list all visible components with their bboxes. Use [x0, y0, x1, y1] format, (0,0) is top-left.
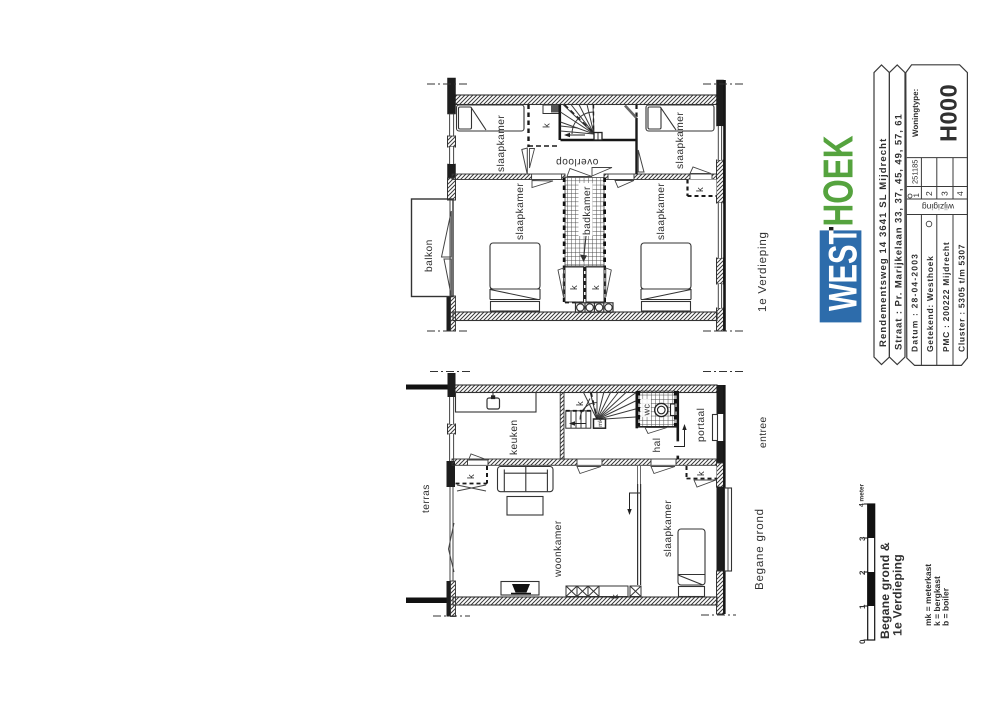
svg-text:k: k — [466, 474, 477, 479]
svg-text:Begane grond: Begane grond — [754, 508, 766, 590]
svg-text:Getekend: Westhoek: Getekend: Westhoek — [925, 255, 935, 352]
svg-text:terras: terras — [421, 484, 432, 513]
svg-text:Woningtype:: Woningtype: — [911, 89, 920, 137]
svg-text:3: 3 — [940, 191, 950, 196]
svg-text:0: 0 — [858, 639, 867, 644]
svg-text:2: 2 — [924, 191, 934, 196]
svg-text:entree: entree — [758, 416, 769, 448]
svg-text:2: 2 — [858, 570, 867, 575]
svg-text:badkamer: badkamer — [582, 186, 593, 235]
svg-text:1: 1 — [858, 604, 867, 609]
svg-text:1e Verdieping: 1e Verdieping — [891, 554, 905, 636]
svg-text:PMC : 200222 Mijdrecht: PMC : 200222 Mijdrecht — [941, 242, 951, 352]
svg-text:wijziging: wijziging — [922, 202, 955, 212]
svg-text:k: k — [591, 285, 602, 290]
svg-text:slaapkamer: slaapkamer — [496, 115, 507, 172]
svg-text:woonkamer: woonkamer — [553, 520, 564, 578]
svg-text:slaapkamer: slaapkamer — [663, 500, 674, 557]
svg-text:4: 4 — [955, 191, 965, 196]
svg-text:b = boiler: b = boiler — [941, 587, 951, 626]
svg-text:Datum : 28-04-2003: Datum : 28-04-2003 — [910, 253, 920, 352]
svg-text:k: k — [695, 187, 706, 192]
svg-text:k: k — [696, 471, 707, 476]
svg-text:Cluster : 5305 t/m 5307: Cluster : 5305 t/m 5307 — [957, 244, 967, 352]
svg-text:1: 1 — [912, 193, 921, 198]
svg-text:slaapkamer: slaapkamer — [656, 183, 667, 240]
svg-text:Rendementsweg 14 3641 SL M: Rendementsweg 14 3641 SL Mijdrecht — [878, 138, 889, 347]
svg-text:slaapkamer: slaapkamer — [515, 183, 526, 240]
svg-text:k: k — [575, 401, 586, 406]
svg-text:k: k — [610, 594, 621, 599]
svg-text:251185: 251185 — [911, 160, 920, 184]
svg-text:keuken: keuken — [509, 419, 520, 455]
svg-text:k: k — [569, 285, 580, 290]
svg-text:overloop: overloop — [556, 156, 599, 167]
svg-text:mk: mk — [597, 418, 604, 427]
svg-text:4 meter: 4 meter — [859, 483, 866, 507]
svg-text:WEST: WEST — [822, 227, 866, 311]
svg-text:HOEK: HOEK — [815, 135, 862, 226]
svg-text:balkon: balkon — [424, 239, 435, 272]
svg-text:hal: hal — [652, 438, 663, 453]
svg-text:H000: H000 — [936, 84, 962, 142]
svg-text:k: k — [542, 123, 553, 128]
svg-text:slaapkamer: slaapkamer — [675, 112, 686, 169]
svg-text:wc: wc — [642, 404, 652, 417]
svg-text:portaal: portaal — [696, 408, 707, 442]
svg-text:Straat : Pr. Marijkelaan: Straat : Pr. Marijkelaan 33, 37, 45, 49,… — [894, 113, 905, 350]
svg-text:3: 3 — [858, 536, 867, 541]
svg-text:1e Verdieping: 1e Verdieping — [757, 231, 769, 312]
